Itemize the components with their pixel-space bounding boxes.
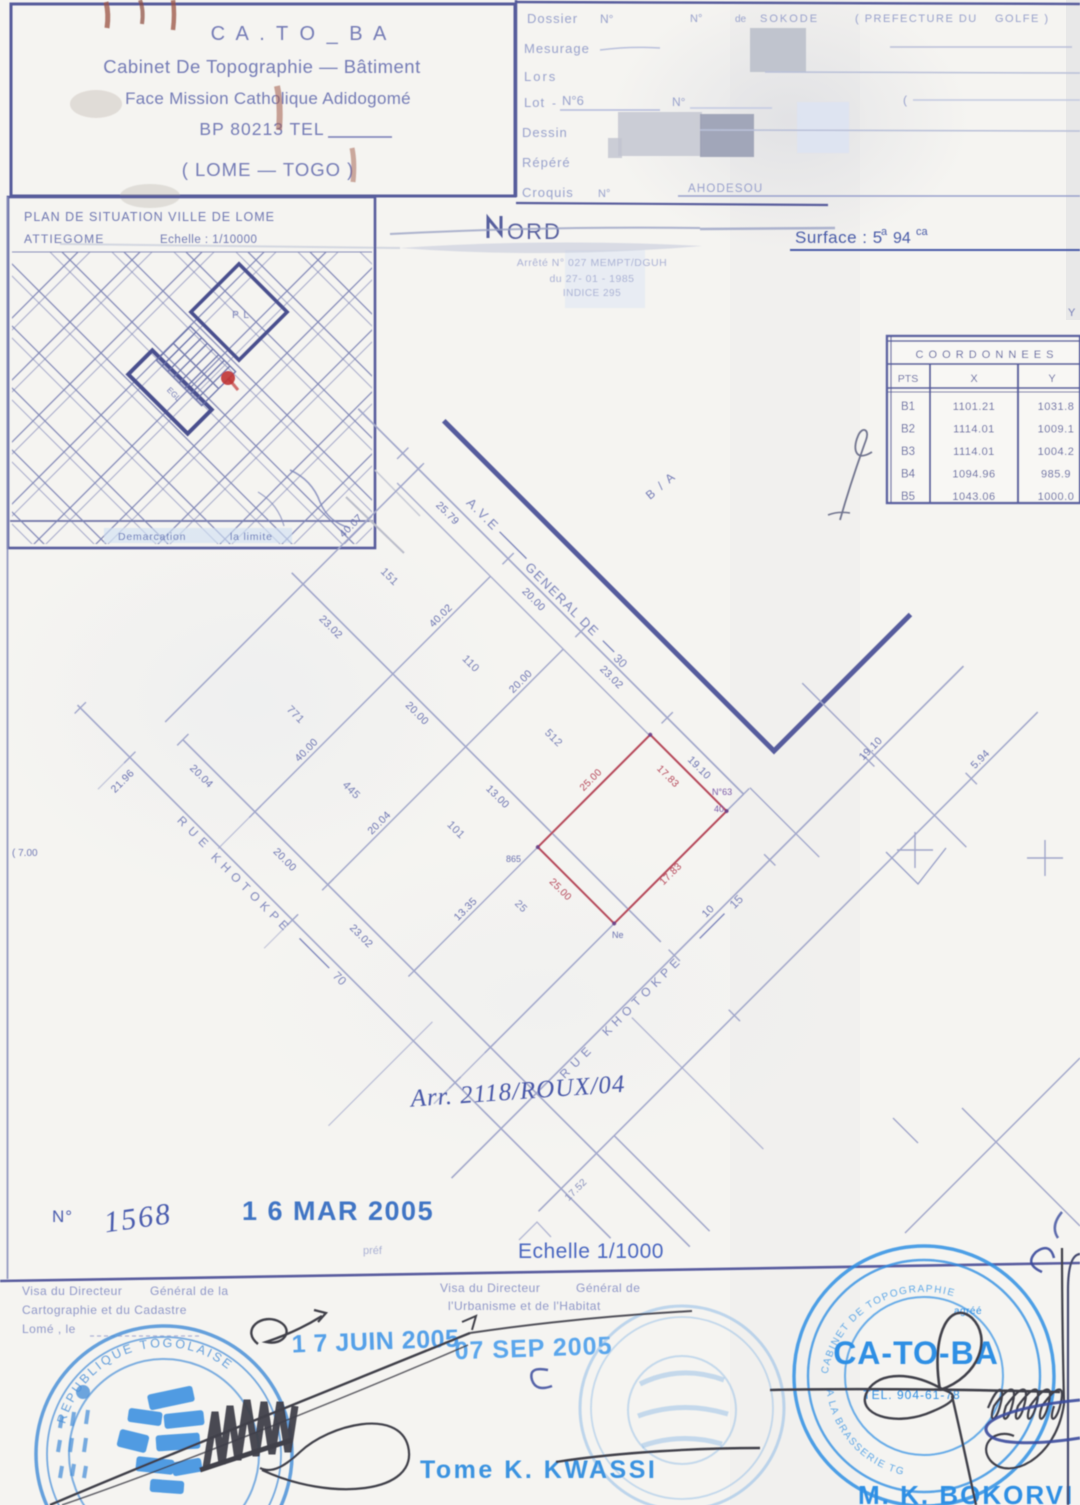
svg-text:PTS: PTS (898, 373, 918, 385)
svg-text:la limite: la limite (230, 531, 273, 543)
svg-text:Y: Y (1068, 307, 1076, 319)
svg-text:M. K. BOKORVI: M. K. BOKORVI (858, 1480, 1074, 1505)
svg-text:Tome K. KWASSI: Tome K. KWASSI (420, 1456, 657, 1484)
svg-text:1009.1: 1009.1 (1038, 424, 1075, 436)
svg-text:985.9: 985.9 (1041, 469, 1071, 481)
svg-text:Arrêté N° 027 MEMPT/DGUH: Arrêté N° 027 MEMPT/DGUH (517, 257, 667, 269)
svg-text:B2: B2 (901, 424, 915, 436)
svg-text:N°: N° (690, 13, 702, 25)
svg-text:1114.01: 1114.01 (953, 446, 995, 458)
svg-text:1043.06: 1043.06 (952, 491, 995, 503)
svg-text:BP 80213 TEL: BP 80213 TEL (199, 119, 324, 139)
svg-text:B5: B5 (901, 491, 915, 503)
svg-text:Général de la: Général de la (150, 1284, 229, 1298)
svg-text:N°: N° (52, 1207, 73, 1226)
svg-text:INDICE 295: INDICE 295 (563, 288, 621, 299)
svg-text:PLAN DE SITUATION VILLE DE: PLAN DE SITUATION VILLE DE LOME (24, 210, 275, 224)
svg-text:865: 865 (506, 854, 521, 864)
svg-text:du 27- 01 - 1985: du 27- 01 - 1985 (549, 273, 634, 285)
svg-text:Demarcation: Demarcation (118, 531, 186, 543)
svg-text:Visa du Directeur: Visa du Directeur (22, 1284, 122, 1298)
svg-text:B1: B1 (901, 401, 915, 413)
svg-text:Y: Y (1048, 373, 1056, 385)
svg-text:N°: N° (600, 12, 614, 26)
svg-text:40: 40 (714, 804, 724, 814)
svg-text:Lors: Lors (524, 69, 557, 84)
svg-text:(: ( (903, 93, 907, 107)
svg-text:1 7 JUIN 2005: 1 7 JUIN 2005 (291, 1325, 460, 1359)
svg-text:1000.0: 1000.0 (1038, 491, 1075, 503)
svg-text:B4: B4 (901, 469, 916, 481)
svg-text:GOLFE ): GOLFE ) (995, 13, 1050, 25)
svg-text:Lot: Lot (524, 95, 545, 110)
svg-text:Echelle : 1/10000: Echelle : 1/10000 (160, 234, 257, 246)
svg-text:ca: ca (916, 226, 929, 238)
svg-text:Ne: Ne (612, 930, 624, 940)
svg-text:( 7.00: ( 7.00 (12, 848, 38, 859)
svg-text:C A . T O _ B A: C A . T O _ B A (211, 23, 390, 45)
svg-text:1004.2: 1004.2 (1038, 446, 1075, 458)
svg-text:( PREFECTURE DU: ( PREFECTURE DU (855, 13, 978, 25)
svg-text:l'Urbanisme et de l'Habitat: l'Urbanisme et de l'Habitat (448, 1299, 601, 1313)
svg-text:de: de (735, 14, 747, 25)
svg-text:Cartographie et du Cadastre: Cartographie et du Cadastre (22, 1303, 187, 1317)
svg-text:ORD: ORD (507, 219, 562, 244)
svg-text:N°: N° (598, 188, 610, 200)
svg-text:Echelle 1/1000: Echelle 1/1000 (518, 1240, 664, 1263)
svg-text:Répéré: Répéré (522, 155, 571, 170)
svg-text:Croquis: Croquis (522, 185, 574, 200)
svg-text:1 6 MAR 2005: 1 6 MAR 2005 (242, 1196, 434, 1226)
svg-text:94: 94 (893, 230, 911, 247)
svg-text:Mesurage: Mesurage (524, 41, 590, 56)
svg-text:B3: B3 (901, 446, 915, 458)
svg-text:Surface : 5: Surface : 5 (795, 228, 883, 247)
svg-text:Visa du Directeur: Visa du Directeur (440, 1281, 540, 1295)
svg-text:N°63: N°63 (712, 787, 732, 797)
svg-text:ATTIEGOME: ATTIEGOME (24, 232, 105, 246)
svg-text:P L: P L (232, 310, 250, 321)
svg-text:C O O R D O N N E E S: C O O R D O N N E E S (916, 349, 1055, 361)
svg-text:Face Mission Catholique Ad: Face Mission Catholique Adidogomé (125, 89, 411, 108)
svg-text:préf: préf (363, 1245, 383, 1257)
svg-text:-: - (552, 96, 556, 110)
svg-text:X: X (970, 373, 978, 385)
svg-text:AHODESOU: AHODESOU (688, 183, 763, 195)
svg-text:a: a (881, 226, 888, 238)
svg-text:07 SEP 2005: 07 SEP 2005 (454, 1332, 613, 1365)
svg-text:( LOME — TOGO ): ( LOME — TOGO ) (182, 159, 355, 180)
svg-text:Dossier: Dossier (527, 11, 578, 26)
svg-text:Lomé , le: Lomé , le (22, 1322, 76, 1336)
svg-text:1094.96: 1094.96 (952, 469, 995, 481)
svg-text:1114.01: 1114.01 (953, 424, 995, 436)
svg-text:SOKODE: SOKODE (760, 13, 819, 25)
svg-text:Dessin: Dessin (522, 125, 568, 140)
svg-text:N°6: N°6 (562, 93, 584, 108)
svg-text:Général de: Général de (576, 1281, 640, 1295)
svg-text:1031.8: 1031.8 (1038, 401, 1075, 413)
svg-text:Cabinet De Topographie — Bâ: Cabinet De Topographie — Bâtiment (103, 56, 420, 77)
svg-text:1101.21: 1101.21 (953, 401, 995, 413)
svg-text:N°: N° (672, 95, 686, 109)
